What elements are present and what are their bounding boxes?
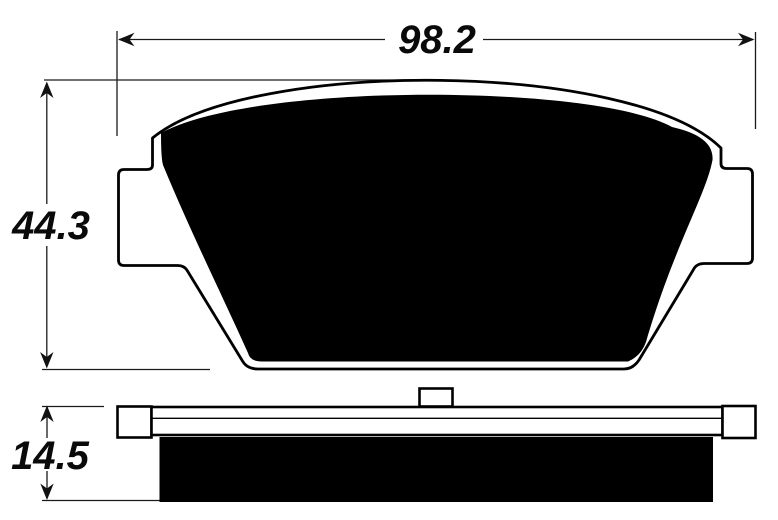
svg-text:14.5: 14.5 <box>11 434 90 478</box>
svg-text:98.2: 98.2 <box>398 18 476 62</box>
svg-text:44.3: 44.3 <box>11 204 90 248</box>
